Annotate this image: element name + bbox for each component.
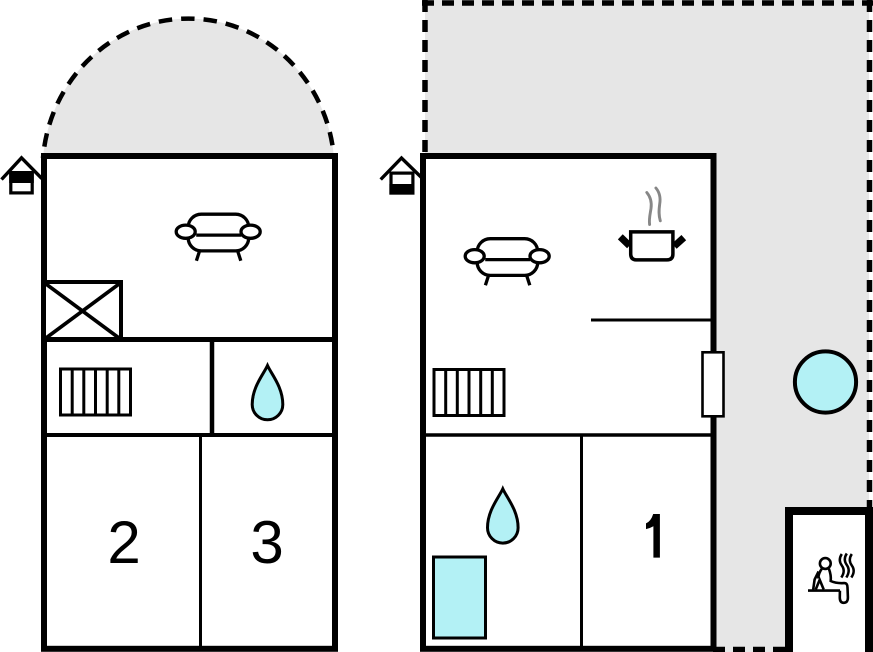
svg-text:3: 3 xyxy=(250,509,283,576)
svg-text:2: 2 xyxy=(107,509,140,576)
